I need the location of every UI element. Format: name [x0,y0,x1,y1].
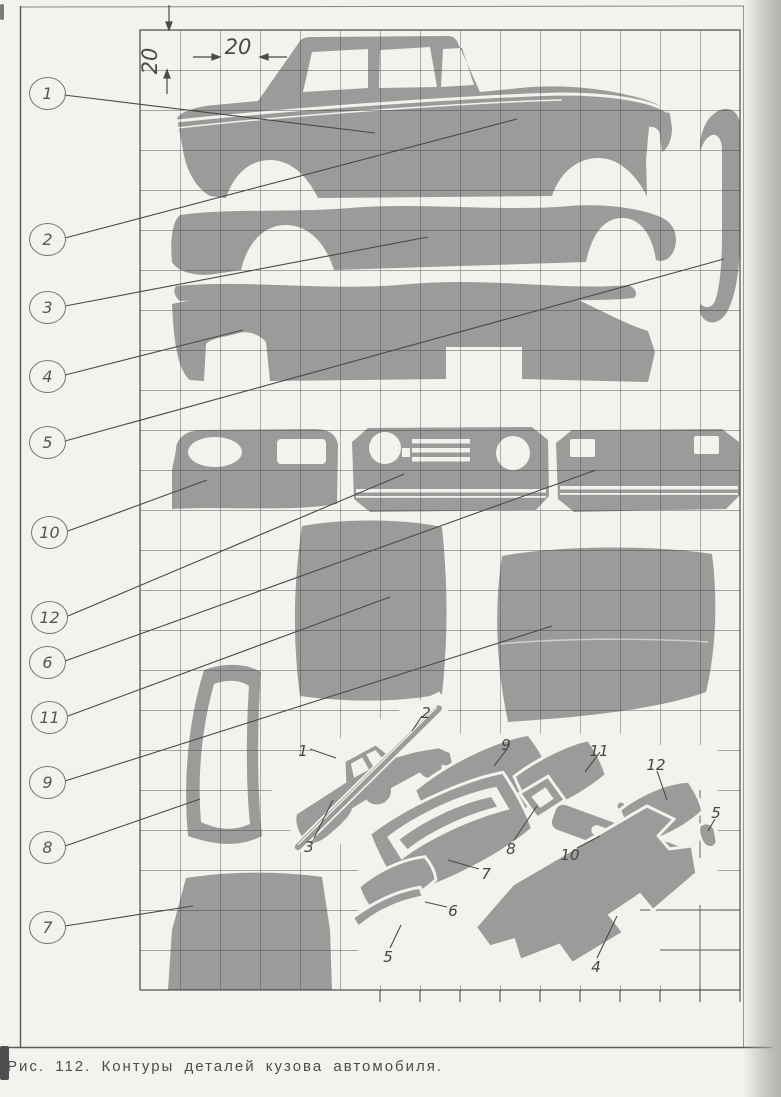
callout-12: 12 [31,601,68,634]
scan-smudge-top-left [0,4,4,20]
figure-112-diagram: 20 20 [0,0,781,1097]
exploded-label-9: 9 [501,736,511,754]
callout-5: 5 [29,426,66,459]
exploded-label-2: 2 [421,704,431,722]
dim-label-vertical: 20 [138,48,162,75]
book-page: 20 20 [0,0,781,1097]
callout-4: 4 [29,360,66,393]
exploded-label-11: 11 [589,742,608,760]
exploded-label-4: 4 [591,958,601,976]
callout-8: 8 [29,831,66,864]
exploded-label-10: 10 [560,846,579,864]
callout-1: 1 [29,77,66,110]
callout-9: 9 [29,766,66,799]
exploded-label-8: 8 [506,840,516,858]
exploded-label-12: 12 [646,756,665,774]
bottom-tick-marks [380,990,740,1002]
scan-smudge-bottom-left [0,1046,9,1080]
callout-11: 11 [31,701,68,734]
callout-6: 6 [29,646,66,679]
dim-label-horizontal: 20 [225,35,252,59]
callout-3: 3 [29,291,66,324]
figure-caption: Рис. 112. Контуры деталей кузова автомоб… [7,1058,567,1075]
exploded-label-5r: 5 [711,804,721,822]
exploded-label-5l: 5 [383,948,393,966]
page-edge-shadow [743,0,781,1097]
exploded-label-7: 7 [481,865,491,883]
callout-7: 7 [29,911,66,944]
exploded-label-6: 6 [448,902,458,920]
exploded-label-3: 3 [304,838,314,856]
exploded-label-1: 1 [298,742,308,760]
callout-2: 2 [29,223,66,256]
callout-10: 10 [31,516,68,549]
